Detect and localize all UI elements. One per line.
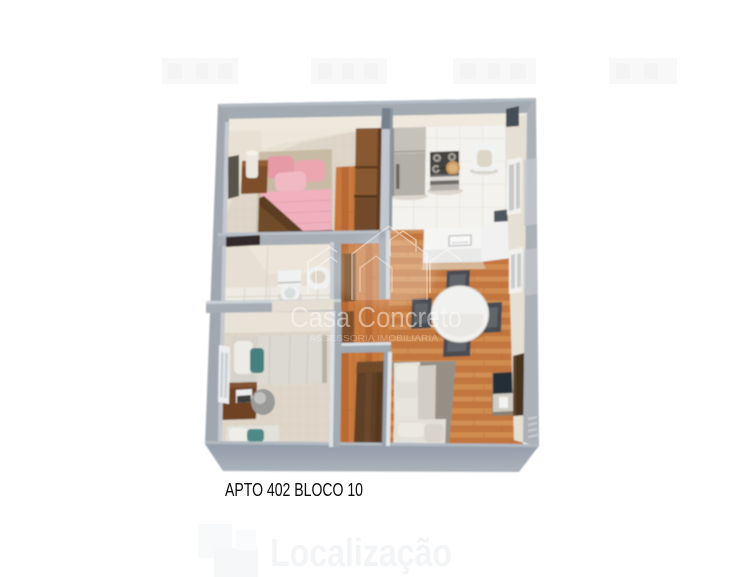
svg-text:APTO 402 BLOCO 10: APTO 402 BLOCO 10 (225, 479, 363, 500)
svg-text:Localização: Localização (270, 532, 452, 575)
svg-text:Casa Concreto: Casa Concreto (290, 302, 462, 334)
svg-text:ASSESSORIA IMOBILIARIA: ASSESSORIA IMOBILIARIA (309, 334, 439, 343)
